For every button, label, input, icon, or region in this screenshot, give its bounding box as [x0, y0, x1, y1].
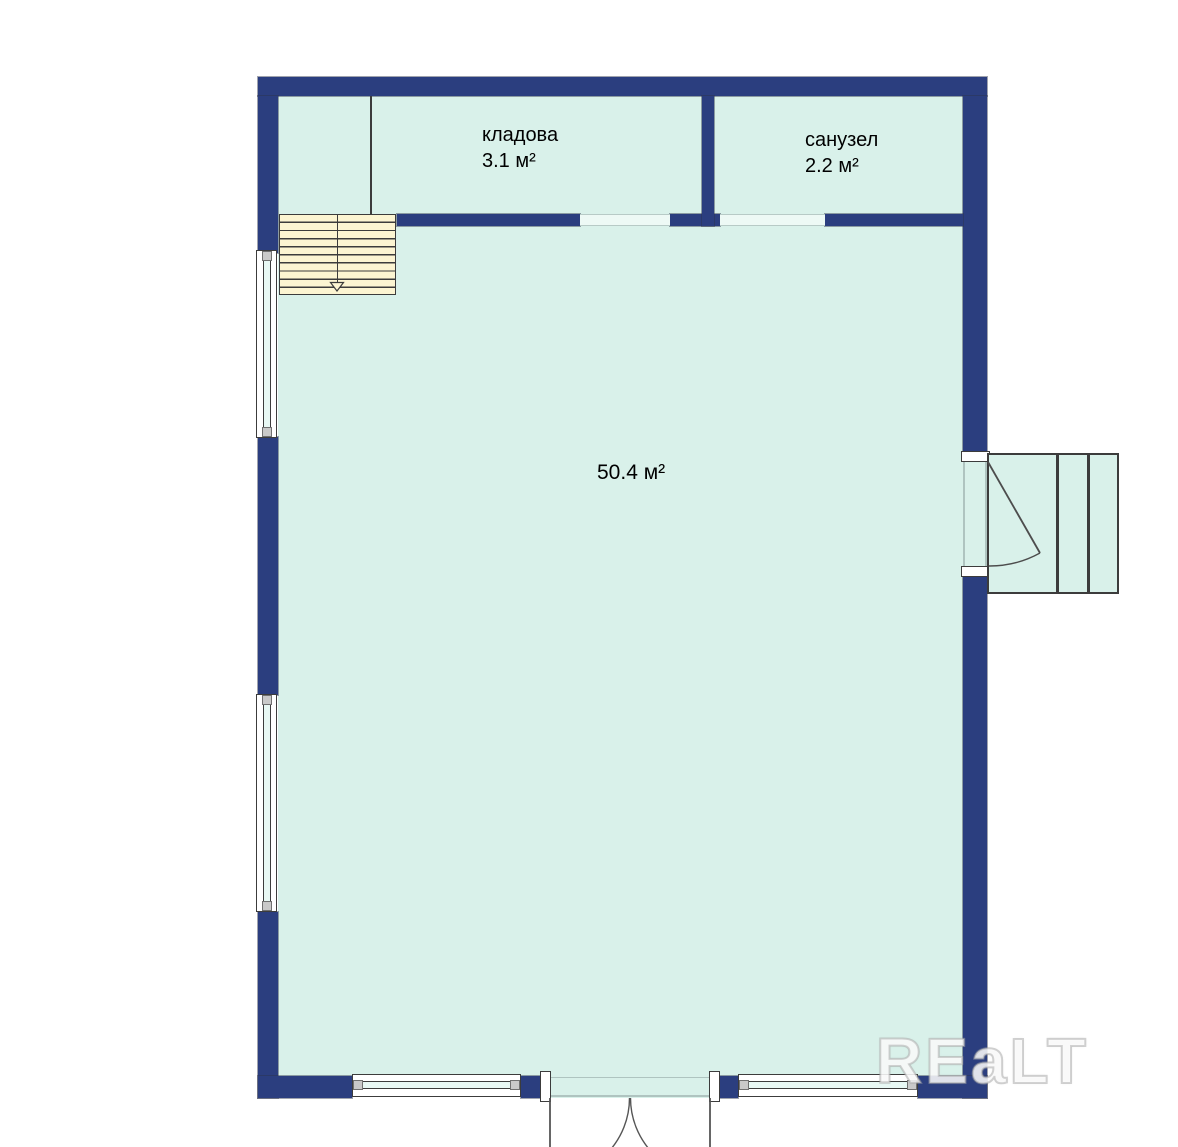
- main-room-area-label: 50.4 м²: [597, 461, 665, 485]
- entry-opening-fill: [963, 462, 987, 566]
- stairs-centerline: [337, 215, 339, 284]
- window-cap: [353, 1080, 363, 1090]
- wall-left-lower: [258, 912, 278, 1098]
- window-cap: [262, 427, 272, 437]
- terrace-threshold-outer: [550, 1095, 710, 1097]
- window-cap: [262, 901, 272, 911]
- window-pane: [263, 695, 271, 911]
- door-opening-storage: [580, 214, 670, 226]
- storage-room-area: 3.1 м²: [482, 148, 558, 174]
- bathroom-room-label: санузел 2.2 м²: [805, 127, 878, 179]
- door-jamb: [961, 566, 990, 577]
- floor-plan: кладова 3.1 м² санузел 2.2 м² 50.4 м² RE…: [0, 0, 1178, 1147]
- bathroom-room-name: санузел: [805, 127, 878, 153]
- wall-top: [258, 77, 987, 96]
- door-jamb: [961, 451, 990, 462]
- wall-bottom-center-left: [521, 1076, 541, 1098]
- window-pane: [353, 1081, 520, 1089]
- wall-bottom-center-right: [718, 1076, 738, 1098]
- wall-interior-bathroom: [825, 214, 963, 226]
- watermark-logo: REaLT: [876, 1024, 1089, 1098]
- entry-threshold-inner: [963, 462, 965, 566]
- divider-line-stairwell: [370, 96, 372, 215]
- bathroom-room-area: 2.2 м²: [805, 153, 878, 179]
- wall-right-upper: [963, 96, 987, 452]
- wall-left-middle: [258, 437, 278, 695]
- window-cap: [739, 1080, 749, 1090]
- window-cap: [262, 695, 272, 705]
- porch-step-line: [1056, 455, 1059, 592]
- wall-interior-storage: [397, 214, 580, 226]
- window-cap: [262, 251, 272, 261]
- storage-room-label: кладова 3.1 м²: [482, 122, 558, 174]
- terrace-threshold-inner: [550, 1077, 710, 1079]
- window-pane: [263, 251, 271, 437]
- terrace-door-swing-right: [631, 1098, 711, 1147]
- wall-partition-storage-bathroom: [702, 96, 714, 226]
- storage-room-name: кладова: [482, 122, 558, 148]
- wall-right-lower: [963, 577, 987, 1098]
- wall-left-upper: [258, 96, 278, 253]
- door-opening-bathroom: [720, 214, 825, 226]
- wall-bottom-left: [258, 1076, 352, 1098]
- window-cap: [510, 1080, 520, 1090]
- porch-step-line: [1087, 455, 1090, 592]
- stairs: [279, 214, 396, 295]
- window-left-2: [256, 694, 277, 912]
- door-jamb: [709, 1071, 720, 1102]
- terrace-door-swing-left: [550, 1098, 630, 1147]
- window-left-1: [256, 250, 277, 438]
- window-bottom-1: [352, 1074, 521, 1097]
- door-jamb: [540, 1071, 551, 1102]
- porch-steps: [987, 453, 1119, 594]
